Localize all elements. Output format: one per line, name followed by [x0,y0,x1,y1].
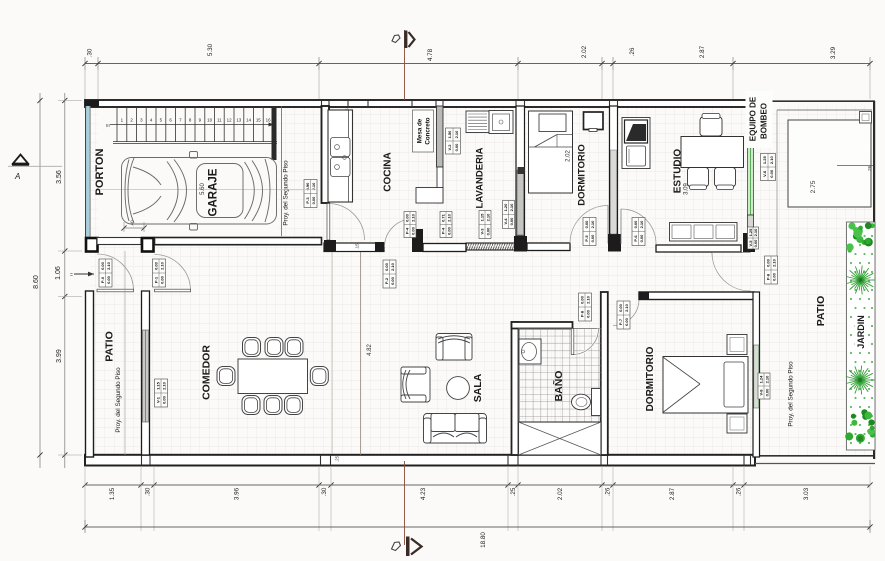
svg-text:=: = [70,273,73,279]
svg-text:LAVANDERIA: LAVANDERIA [474,147,485,208]
svg-text:V-8: V-8 [759,389,764,396]
svg-text:5.60: 5.60 [200,183,206,195]
svg-text:2.10: 2.10 [769,156,774,165]
svg-text:1.25: 1.25 [762,156,767,165]
svg-text:0.00: 0.00 [485,227,490,236]
svg-text:2.10: 2.10 [772,258,777,267]
svg-text:Concreto: Concreto [425,117,432,144]
svg-text:0.00: 0.00 [410,226,415,235]
svg-text:2.87: 2.87 [699,45,706,58]
svg-text:0.00: 0.00 [100,261,105,270]
svg-text:2.10: 2.10 [311,182,316,191]
svg-text:2.10: 2.10 [160,261,165,270]
svg-text:P-8: P-8 [765,273,770,280]
svg-text:8.60: 8.60 [33,275,40,289]
svg-text:.15: .15 [355,243,360,249]
svg-text:0.00: 0.00 [639,234,644,243]
svg-text:2.02: 2.02 [581,45,588,58]
svg-text:10: 10 [207,118,212,123]
svg-text:V-6: V-6 [762,170,767,177]
svg-text:0.00: 0.00 [764,388,769,397]
svg-text:V-4: V-4 [503,218,508,225]
svg-text:PATIO: PATIO [104,331,116,362]
svg-text:P-4: P-4 [405,227,410,234]
svg-text:.26: .26 [736,487,743,496]
svg-text:0.00: 0.00 [311,196,316,205]
svg-text:1.35: 1.35 [109,487,116,500]
svg-text:COCINA: COCINA [383,152,394,191]
svg-text:0.00: 0.00 [772,272,777,281]
svg-text:12: 12 [227,118,232,123]
svg-text:DORMITORIO: DORMITORIO [645,346,656,411]
svg-text:SALA: SALA [472,373,484,402]
svg-text:V-1: V-1 [155,396,160,403]
svg-text:18.80: 18.80 [480,532,487,548]
svg-text:2.10: 2.10 [639,220,644,229]
svg-text:0.00: 0.00 [106,275,111,284]
svg-text:JARDIN: JARDIN [856,315,866,349]
svg-text:0.00: 0.00 [446,226,451,235]
svg-text:EQUIPO DE: EQUIPO DE [748,96,757,141]
svg-text:.25: .25 [335,455,340,461]
svg-text:0.00: 0.00 [153,261,158,270]
svg-text:4.78: 4.78 [427,48,434,61]
svg-text:0.71: 0.71 [441,213,446,222]
svg-text:P-7: P-7 [618,318,623,325]
svg-text:0.00: 0.00 [769,169,774,178]
svg-text:Proy. del Segundo Piso: Proy. del Segundo Piso [283,160,290,226]
svg-text:13: 13 [236,118,241,123]
svg-text:2.10: 2.10 [586,295,591,304]
svg-text:V-5: V-5 [748,240,753,247]
svg-text:2.75: 2.75 [810,180,817,193]
svg-text:0.00: 0.00 [384,262,389,271]
svg-text:P-0: P-0 [100,276,105,283]
svg-text:2.10: 2.10 [753,228,758,237]
svg-text:15: 15 [256,118,261,123]
svg-text:0.00: 0.00 [633,220,638,229]
svg-text:DORMITORIO: DORMITORIO [576,144,587,206]
svg-text:0.00: 0.00 [618,303,623,312]
svg-text:0.00: 0.00 [162,395,167,404]
svg-text:0.90: 0.90 [305,182,310,191]
svg-text:PATIO: PATIO [815,296,827,327]
svg-text:GARAJE: GARAJE [208,168,220,216]
svg-text:P-3: P-3 [305,197,310,204]
svg-text:2.10: 2.10 [162,381,167,390]
svg-text:P-6: P-6 [633,235,638,242]
svg-text:3.99: 3.99 [56,349,63,363]
svg-text:2.10: 2.10 [590,220,595,229]
svg-text:4.82: 4.82 [367,344,373,356]
svg-text:2.10: 2.10 [509,203,514,212]
svg-text:3.29: 3.29 [830,46,837,59]
svg-text:0.00: 0.00 [390,276,395,285]
svg-text:COMEDOR: COMEDOR [201,345,213,400]
svg-text:PORTON: PORTON [94,149,106,196]
svg-text:3.96: 3.96 [234,487,241,500]
svg-text:2.10: 2.10 [624,303,629,312]
svg-text:P-8: P-8 [579,310,584,317]
svg-text:0.00: 0.00 [586,309,591,318]
svg-text:1.06: 1.06 [55,266,62,280]
svg-text:2.10: 2.10 [454,130,459,139]
svg-text:0.00: 0.00 [624,317,629,326]
svg-text:0.00: 0.00 [454,143,459,152]
svg-text:1.25: 1.25 [748,228,753,237]
svg-text:Proy. del Segundo Piso: Proy. del Segundo Piso [788,361,795,427]
svg-text:5.30: 5.30 [207,43,214,56]
svg-text:0.00: 0.00 [753,239,758,248]
svg-text:11: 11 [217,118,222,123]
svg-text:V-2: V-2 [447,144,452,151]
svg-text:2.10: 2.10 [485,213,490,222]
svg-text:.26: .26 [629,47,636,56]
svg-text:0.00: 0.00 [590,234,595,243]
svg-text:.26: .26 [867,165,872,172]
svg-text:0.00: 0.00 [160,275,165,284]
svg-text:A: A [14,172,20,181]
svg-text:2.10: 2.10 [764,375,769,384]
svg-text:2.10: 2.10 [446,213,451,222]
svg-text:Proy. del Segundo Piso: Proy. del Segundo Piso [115,367,122,433]
svg-text:.30: .30 [87,48,94,57]
svg-text:0.00: 0.00 [405,213,410,222]
svg-text:V-3: V-3 [480,228,485,235]
svg-text:.30: .30 [321,487,328,496]
svg-text:0.00: 0.00 [509,217,514,226]
svg-text:P-5: P-5 [584,235,589,242]
svg-text:P-1: P-1 [153,276,158,283]
svg-text:3.56: 3.56 [56,170,63,184]
svg-text:.25: .25 [510,487,517,496]
svg-text:0.00: 0.00 [579,295,584,304]
svg-text:2.87: 2.87 [669,487,676,500]
svg-text:1.24: 1.24 [759,375,764,384]
svg-text:0.00: 0.00 [765,258,770,267]
svg-text:Mesa de: Mesa de [417,118,424,143]
svg-text:.30: .30 [145,487,152,496]
svg-text:P-4: P-4 [441,227,446,234]
svg-text:2.10: 2.10 [410,213,415,222]
svg-text:2.02: 2.02 [566,150,572,162]
svg-text:.26: .26 [605,487,612,496]
svg-text:1.20: 1.20 [503,203,508,212]
svg-text:4.23: 4.23 [420,487,427,500]
svg-text:2.10: 2.10 [390,262,395,271]
svg-text:1.15: 1.15 [155,381,160,390]
svg-text:2.02: 2.02 [557,487,564,500]
svg-text:.40: .40 [130,220,135,227]
svg-text:16: 16 [266,118,271,123]
svg-text:2.10: 2.10 [106,261,111,270]
svg-text:III: III [106,123,110,128]
svg-text:1.50: 1.50 [447,130,452,139]
svg-text:3.03: 3.03 [803,487,810,500]
svg-text:0.00: 0.00 [584,220,589,229]
svg-text:14: 14 [246,118,251,123]
svg-text:BAÑO: BAÑO [552,371,565,402]
svg-text:BOMBEO: BOMBEO [759,103,768,139]
svg-text:1.15: 1.15 [480,213,485,222]
svg-text:P-2: P-2 [384,277,389,284]
